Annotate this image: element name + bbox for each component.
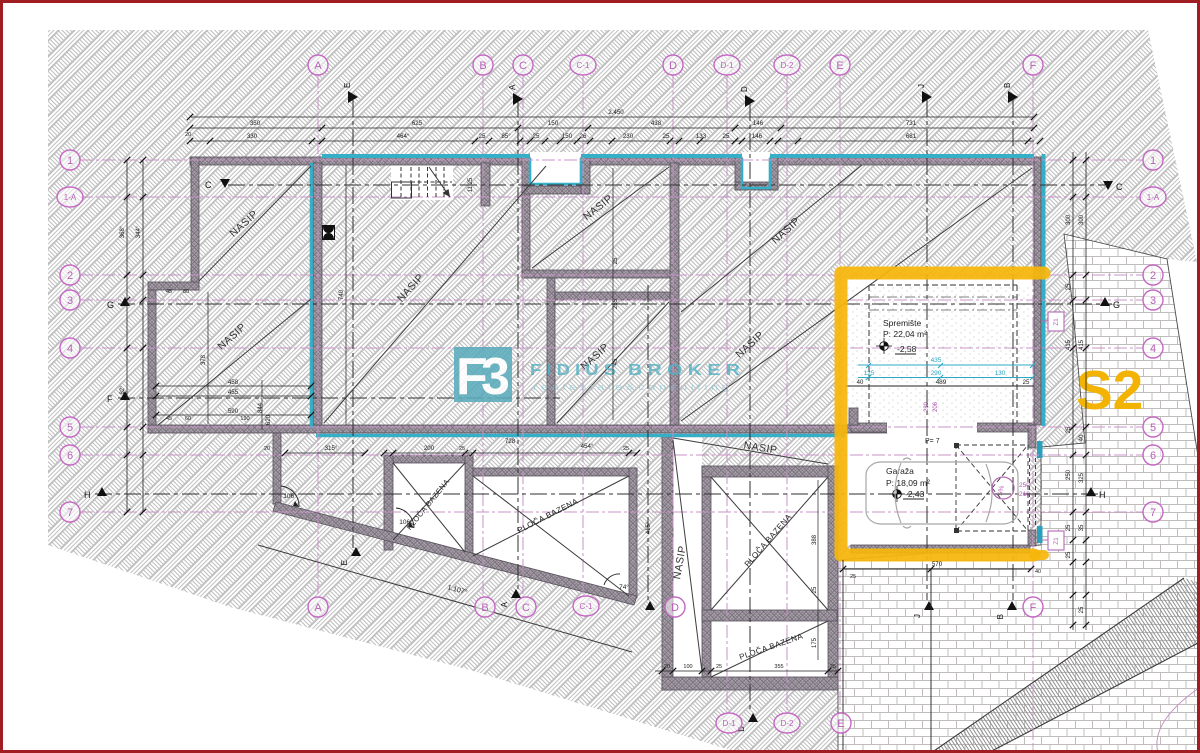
svg-text:1-A: 1-A (64, 193, 77, 202)
svg-text:60: 60 (185, 416, 191, 422)
svg-text:3: 3 (1150, 295, 1156, 307)
svg-text:25: 25 (850, 574, 856, 580)
svg-text:25: 25 (1066, 524, 1072, 531)
svg-text:731: 731 (906, 120, 917, 127)
svg-text:20: 20 (664, 664, 670, 670)
svg-text:C-1: C-1 (580, 602, 593, 611)
svg-text:D-2: D-2 (781, 719, 794, 728)
svg-text:2: 2 (1150, 270, 1156, 282)
svg-text:2.450: 2.450 (608, 109, 624, 116)
svg-text:315°: 315° (325, 445, 338, 452)
svg-text:740: 740 (339, 289, 345, 300)
svg-text:415: 415 (1079, 339, 1085, 350)
svg-text:82°: 82° (120, 385, 126, 395)
svg-text:378: 378 (201, 354, 207, 365)
svg-text:E: E (343, 83, 352, 88)
svg-text:133: 133 (696, 133, 707, 140)
svg-text:25: 25 (459, 446, 465, 452)
svg-text:5: 5 (1150, 422, 1156, 434)
svg-text:125: 125 (864, 370, 875, 377)
svg-text:80: 80 (183, 289, 189, 295)
svg-text:J: J (917, 84, 926, 88)
svg-text:4: 4 (67, 343, 73, 355)
svg-text:45: 45 (166, 416, 172, 422)
svg-text:C-1: C-1 (577, 61, 590, 70)
svg-text:344°: 344° (136, 225, 142, 238)
svg-text:F: F (107, 394, 113, 404)
svg-text:G: G (107, 300, 114, 310)
svg-text:25: 25 (613, 257, 619, 264)
svg-text:-2,58: -2,58 (897, 344, 917, 354)
svg-text:H: H (1099, 490, 1106, 500)
svg-text:146: 146 (753, 120, 764, 127)
svg-text:25: 25 (1079, 606, 1085, 613)
svg-text:26: 26 (580, 133, 587, 140)
svg-text:728: 728 (505, 438, 516, 445)
svg-text:206: 206 (933, 401, 939, 412)
svg-text:455: 455 (228, 389, 239, 396)
svg-text:620: 620 (266, 414, 272, 425)
svg-text:5: 5 (67, 422, 73, 434)
svg-text:B: B (479, 60, 486, 72)
svg-text:106°: 106° (283, 492, 297, 500)
svg-text:6: 6 (67, 450, 73, 462)
svg-text:D-1: D-1 (721, 61, 734, 70)
svg-text:106°: 106° (399, 518, 413, 526)
svg-text:25: 25 (1066, 551, 1072, 558)
svg-text:3: 3 (481, 348, 510, 406)
svg-text:489: 489 (936, 379, 947, 386)
svg-text:435: 435 (931, 357, 942, 364)
svg-text:210: 210 (1019, 491, 1030, 498)
svg-text:150: 150 (562, 133, 573, 140)
svg-text:F: F (1030, 602, 1037, 614)
svg-text:F: F (1030, 60, 1037, 72)
svg-text:6: 6 (1150, 450, 1156, 462)
svg-text:D-1: D-1 (723, 719, 736, 728)
svg-text:25: 25 (723, 133, 730, 140)
svg-text:D: D (669, 60, 677, 72)
svg-text:300: 300 (1066, 214, 1072, 225)
svg-text:130: 130 (995, 370, 1006, 377)
svg-text:350: 350 (250, 120, 261, 127)
svg-text:Spremište: Spremište (883, 318, 922, 328)
svg-text:D: D (671, 602, 679, 614)
svg-text:458: 458 (228, 379, 239, 386)
svg-text:625: 625 (412, 120, 423, 127)
svg-text:20: 20 (185, 132, 191, 138)
svg-text:40: 40 (1035, 569, 1041, 575)
svg-text:C: C (519, 60, 527, 72)
svg-text:844: 844 (258, 402, 264, 413)
svg-text:E: E (340, 560, 349, 565)
svg-text:H: H (84, 490, 91, 500)
svg-text:25: 25 (1066, 283, 1072, 290)
svg-text:3: 3 (67, 295, 73, 307)
svg-text:280: 280 (924, 401, 930, 412)
svg-text:E: E (836, 60, 843, 72)
svg-text:C: C (205, 180, 212, 190)
svg-text:7: 7 (1150, 507, 1156, 519)
svg-text:A: A (508, 84, 517, 90)
svg-text:7: 7 (67, 507, 73, 519)
svg-text:r e a l e s t a t e & c o n: r e a l e s t a t e & c o n s u l t i n … (533, 382, 729, 393)
svg-text:464°: 464° (397, 133, 410, 140)
svg-text:P= 7: P= 7 (925, 438, 940, 445)
svg-text:1: 1 (67, 155, 73, 167)
svg-text:300: 300 (1079, 214, 1085, 225)
svg-text:D-2: D-2 (781, 61, 794, 70)
svg-text:25: 25 (533, 133, 540, 140)
svg-text:250: 250 (1019, 482, 1030, 489)
svg-text:681: 681 (906, 133, 917, 140)
svg-text:25: 25 (1023, 380, 1030, 386)
svg-text:40: 40 (1079, 434, 1085, 441)
svg-text:438: 438 (651, 120, 662, 127)
svg-text:35: 35 (1079, 524, 1085, 531)
svg-text:355: 355 (774, 664, 783, 670)
svg-text:190: 190 (240, 416, 249, 422)
svg-text:388: 388 (812, 534, 818, 545)
svg-text:415: 415 (1066, 339, 1072, 350)
svg-text:Garaža: Garaža (886, 466, 914, 476)
svg-text:-2,43: -2,43 (905, 489, 925, 499)
svg-text:368°: 368° (120, 225, 126, 238)
svg-text:40: 40 (857, 380, 864, 386)
svg-text:25: 25 (623, 446, 629, 452)
svg-text:590: 590 (228, 408, 239, 415)
svg-text:25: 25 (716, 664, 722, 670)
svg-text:1: 1 (1150, 155, 1156, 167)
svg-text:25: 25 (663, 133, 670, 140)
svg-text:175: 175 (812, 637, 818, 648)
svg-text:85°: 85° (501, 133, 511, 140)
svg-text:25: 25 (479, 133, 486, 140)
svg-text:C: C (1116, 182, 1123, 192)
svg-text:200: 200 (424, 445, 435, 452)
svg-text:E: E (837, 718, 844, 730)
svg-text:G: G (1113, 300, 1120, 310)
svg-text:A: A (500, 601, 509, 607)
svg-text:11 25: 11 25 (468, 177, 474, 192)
svg-text:P: 18,09 m²: P: 18,09 m² (886, 478, 930, 488)
svg-text:D: D (740, 86, 749, 92)
svg-text:150: 150 (548, 120, 559, 127)
svg-text:A: A (314, 602, 322, 614)
svg-text:255: 255 (613, 298, 619, 309)
svg-text:74°: 74° (619, 583, 629, 591)
svg-text:325: 325 (1079, 472, 1085, 483)
svg-text:45: 45 (166, 289, 172, 295)
svg-text:Z1: Z1 (1053, 537, 1060, 545)
svg-text:J: J (913, 614, 922, 618)
svg-text:Z1: Z1 (1053, 318, 1060, 326)
svg-text:570: 570 (932, 561, 943, 568)
svg-text:230: 230 (623, 133, 634, 140)
svg-text:45: 45 (613, 358, 619, 365)
svg-text:1-A: 1-A (1147, 193, 1160, 202)
svg-text:250: 250 (1066, 469, 1072, 480)
svg-text:A: A (314, 60, 322, 72)
svg-text:F I D I U S: F I D I U S (530, 362, 616, 379)
svg-text:20: 20 (264, 446, 270, 452)
svg-text:P: 22,04 m²: P: 22,04 m² (883, 329, 927, 339)
svg-text:B: B (481, 602, 488, 614)
svg-text:25: 25 (1066, 426, 1072, 433)
svg-text:454°: 454° (581, 443, 594, 450)
svg-text:415°: 415° (646, 521, 652, 534)
svg-text:290: 290 (931, 370, 942, 377)
svg-text:330: 330 (247, 133, 258, 140)
svg-text:100: 100 (683, 664, 692, 670)
svg-text:B: B (1003, 83, 1012, 88)
svg-text:B: B (996, 614, 1005, 619)
svg-text:4: 4 (1150, 343, 1156, 355)
svg-text:25: 25 (830, 664, 836, 670)
svg-text:25: 25 (812, 586, 818, 593)
svg-text:B R O K E R: B R O K E R (628, 362, 741, 379)
svg-text:2: 2 (67, 270, 73, 282)
svg-text:146: 146 (752, 133, 763, 140)
svg-text:C: C (522, 602, 530, 614)
